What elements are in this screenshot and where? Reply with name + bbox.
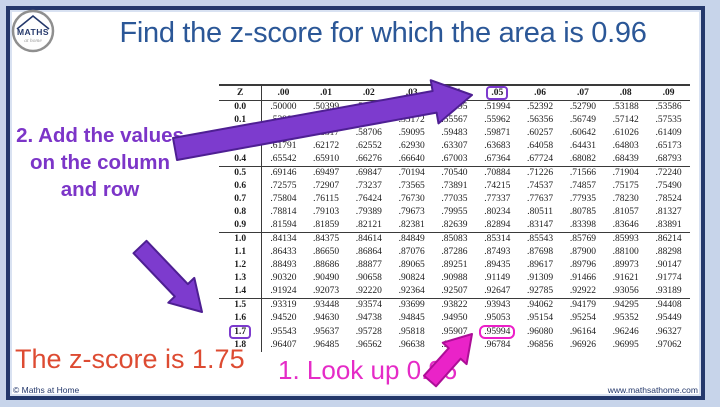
ztable-cell: .95907 — [433, 325, 476, 339]
ztable-cell: .77035 — [433, 193, 476, 206]
ztable-cell: .71226 — [519, 167, 562, 181]
result-text: The z-score is 1.75 — [15, 344, 245, 375]
ztable-cell: .96926 — [562, 339, 605, 352]
ztable-cell: .64058 — [519, 140, 562, 153]
ztable-cell: .76424 — [347, 193, 390, 206]
ztable-cell: .65173 — [647, 140, 690, 153]
ztable-cell: .96485 — [305, 339, 348, 352]
ztable-cell: .92785 — [519, 285, 562, 299]
ztable-cell: .83891 — [647, 219, 690, 233]
ztable-cell: .84849 — [390, 233, 433, 247]
ztable-cell: .74537 — [519, 180, 562, 193]
ztable-cell: .59483 — [433, 127, 476, 140]
ztable-cell: .74215 — [476, 180, 519, 193]
ztable-cell: .90988 — [433, 272, 476, 285]
ztable-cell: .89435 — [476, 259, 519, 272]
ztable-cell: .81057 — [604, 206, 647, 219]
ztable-cell: .68439 — [604, 153, 647, 167]
ztable-cell: .92647 — [476, 285, 519, 299]
ztable-cell: .65910 — [305, 153, 348, 167]
ztable-cell: .77637 — [519, 193, 562, 206]
ztable-cell: .77935 — [562, 193, 605, 206]
ztable-cell: .80785 — [562, 206, 605, 219]
ztable-cell: .89617 — [519, 259, 562, 272]
ztable-cell: .96638 — [390, 339, 433, 352]
ztable-cell: .87493 — [476, 246, 519, 259]
ztable-cell: .88686 — [305, 259, 348, 272]
ztable-cell: .92922 — [562, 285, 605, 299]
ztable-cell: .97062 — [647, 339, 690, 352]
ztable-cell: .78524 — [647, 193, 690, 206]
ztable-cell: .96784 — [476, 339, 519, 352]
ztable-cell: .96327 — [647, 325, 690, 339]
ztable-cell: .57926 — [262, 127, 305, 140]
ztable-cell: .54380 — [305, 114, 348, 127]
ztable-col-header: .09 — [647, 85, 690, 101]
ztable-cell: .88877 — [347, 259, 390, 272]
ztable-cell: .51994 — [476, 101, 519, 115]
ztable-cell: .84614 — [347, 233, 390, 247]
ztable-cell: .93699 — [390, 299, 433, 313]
copyright-text: © Maths at Home — [13, 385, 79, 395]
ztable-cell: .72240 — [647, 167, 690, 181]
ztable-row-label: 0.2 — [219, 127, 262, 140]
ztable-cell: .69847 — [347, 167, 390, 181]
highlight-box-row: 1.7 — [229, 325, 251, 339]
ztable-cell: .83646 — [604, 219, 647, 233]
ztable-cell: .81327 — [647, 206, 690, 219]
ztable-cell: .83398 — [562, 219, 605, 233]
ztable-cell: .85314 — [476, 233, 519, 247]
ztable-cell: .60642 — [562, 127, 605, 140]
ztable-row-label: 1.1 — [219, 246, 262, 259]
ztable-cell: .56356 — [519, 114, 562, 127]
ztable-row-label: 1.7 — [219, 325, 262, 339]
ztable-cell: .95994 — [476, 325, 519, 339]
ztable-cell: .88493 — [262, 259, 305, 272]
ztable-cell: .85083 — [433, 233, 476, 247]
ztable-cell: .61026 — [604, 127, 647, 140]
ztable-cell: .91466 — [562, 272, 605, 285]
ztable-cell: .59871 — [476, 127, 519, 140]
ztable-row-label: 0.0 — [219, 101, 262, 115]
ztable-cell: .92507 — [433, 285, 476, 299]
ztable-cell: .72575 — [262, 180, 305, 193]
ztable-cell: .87900 — [562, 246, 605, 259]
ztable-cell: .58317 — [305, 127, 348, 140]
ztable-cell: .76730 — [390, 193, 433, 206]
ztable-cell: .94845 — [390, 312, 433, 325]
ztable-cell: .90824 — [390, 272, 433, 285]
ztable-cell: .73565 — [390, 180, 433, 193]
ztable-cell: .94738 — [347, 312, 390, 325]
ztable-cell: .93574 — [347, 299, 390, 313]
ztable-cell: .86214 — [647, 233, 690, 247]
ztable-cell: .75490 — [647, 180, 690, 193]
ztable-cell: .84134 — [262, 233, 305, 247]
ztable-cell: .67724 — [519, 153, 562, 167]
ztable-cell: .95053 — [476, 312, 519, 325]
ztable-cell: .53983 — [262, 114, 305, 127]
ztable-row-label: 0.9 — [219, 219, 262, 233]
ztable-row-label: 1.2 — [219, 259, 262, 272]
ztable-row-label: 0.8 — [219, 206, 262, 219]
ztable-cell: .81594 — [262, 219, 305, 233]
ztable-cell: .53188 — [604, 101, 647, 115]
ztable-col-header: .03 — [390, 85, 433, 101]
ztable-cell: .57142 — [604, 114, 647, 127]
ztable-cell: .81859 — [305, 219, 348, 233]
slide-title: Find the z-score for which the area is 0… — [64, 17, 702, 50]
ztable-cell: .85993 — [604, 233, 647, 247]
ztable-cell: .71904 — [604, 167, 647, 181]
ztable-cell: .50399 — [305, 101, 348, 115]
ztable-cell: .78814 — [262, 206, 305, 219]
ztable-cell: .65542 — [262, 153, 305, 167]
ztable-col-header: .04 — [433, 85, 476, 101]
ztable-cell: .55172 — [390, 114, 433, 127]
ztable-cell: .91309 — [519, 272, 562, 285]
ztable-cell: .66276 — [347, 153, 390, 167]
ztable-cell: .63683 — [476, 140, 519, 153]
ztable-cell: .93056 — [604, 285, 647, 299]
ztable-cell: .82121 — [347, 219, 390, 233]
ztable-cell: .91774 — [647, 272, 690, 285]
ztable-cell: .94630 — [305, 312, 348, 325]
ztable-cell: .70540 — [433, 167, 476, 181]
ztable-cell: .61409 — [647, 127, 690, 140]
ztable-cell: .87286 — [433, 246, 476, 259]
ztable-cell: .54776 — [347, 114, 390, 127]
ztable-cell: .96995 — [604, 339, 647, 352]
ztable-cell: .91924 — [262, 285, 305, 299]
ztable-cell: .52392 — [519, 101, 562, 115]
ztable-cell: .69146 — [262, 167, 305, 181]
ztable-cell: .94950 — [433, 312, 476, 325]
highlight-box-cell: .95994 — [479, 325, 515, 339]
ztable-cell: .53586 — [647, 101, 690, 115]
ztable-cell: .58706 — [347, 127, 390, 140]
ztable-cell: .79955 — [433, 206, 476, 219]
ztable-cell: .83147 — [519, 219, 562, 233]
maths-at-home-logo: MATHS at home — [10, 8, 56, 54]
ztable-cell: .96856 — [519, 339, 562, 352]
ztable-cell: .88298 — [647, 246, 690, 259]
ztable-cell: .67364 — [476, 153, 519, 167]
ztable-cell: .94179 — [562, 299, 605, 313]
ztable-cell: .86433 — [262, 246, 305, 259]
ztable-cell: .51595 — [433, 101, 476, 115]
ztable-cell: .93319 — [262, 299, 305, 313]
ztable-cell: .87076 — [390, 246, 433, 259]
ztable-cell: .93189 — [647, 285, 690, 299]
ztable-cell: .95818 — [390, 325, 433, 339]
ztable-cell: .51197 — [390, 101, 433, 115]
ztable-cell: .93822 — [433, 299, 476, 313]
ztable-cell: .73891 — [433, 180, 476, 193]
ztable-cell: .82894 — [476, 219, 519, 233]
ztable-cell: .96712 — [433, 339, 476, 352]
ztable-cell: .57535 — [647, 114, 690, 127]
ztable-cell: .82639 — [433, 219, 476, 233]
ztable-row-label: 0.6 — [219, 180, 262, 193]
ztable-cell: .92364 — [390, 285, 433, 299]
ztable-cell: .79673 — [390, 206, 433, 219]
ztable-row-label: 0.3 — [219, 140, 262, 153]
ztable-cell: .93448 — [305, 299, 348, 313]
ztable-cell: .50798 — [347, 101, 390, 115]
ztable-cell: .85769 — [562, 233, 605, 247]
ztable-cell: .90490 — [305, 272, 348, 285]
ztable-cell: .68082 — [562, 153, 605, 167]
ztable-cell: .95637 — [305, 325, 348, 339]
ztable-row-label: 1.4 — [219, 285, 262, 299]
ztable-cell: .66640 — [390, 153, 433, 167]
ztable-cell: .85543 — [519, 233, 562, 247]
logo-subtext: at home — [24, 38, 42, 44]
ztable-cell: .64803 — [604, 140, 647, 153]
ztable-cell: .56749 — [562, 114, 605, 127]
ztable-cell: .89065 — [390, 259, 433, 272]
ztable-cell: .89973 — [604, 259, 647, 272]
ztable-cell: .62930 — [390, 140, 433, 153]
ztable-cell: .55567 — [433, 114, 476, 127]
ztable-cell: .78230 — [604, 193, 647, 206]
step1-annotation: 1. Look up 0.96 — [278, 355, 457, 386]
ztable-cell: .60257 — [519, 127, 562, 140]
ztable-cell: .91149 — [476, 272, 519, 285]
ztable-cell: .70884 — [476, 167, 519, 181]
ztable-cell: .80234 — [476, 206, 519, 219]
ztable-col-header: .08 — [604, 85, 647, 101]
ztable-cell: .84375 — [305, 233, 348, 247]
ztable-cell: .89796 — [562, 259, 605, 272]
ztable-cell: .94295 — [604, 299, 647, 313]
ztable-cell: .96164 — [562, 325, 605, 339]
ztable-cell: .71566 — [562, 167, 605, 181]
ztable-cell: .80511 — [519, 206, 562, 219]
ztable-col-header: Z — [219, 85, 262, 101]
ztable-row-label: 0.5 — [219, 167, 262, 181]
ztable-cell: .72907 — [305, 180, 348, 193]
ztable-cell: .76115 — [305, 193, 348, 206]
ztable-row-label: 1.6 — [219, 312, 262, 325]
ztable-cell: .59095 — [390, 127, 433, 140]
ztable-cell: .75804 — [262, 193, 305, 206]
logo-text: MATHS — [17, 27, 49, 37]
ztable-cell: .95543 — [262, 325, 305, 339]
website-url: www.mathsathome.com — [608, 385, 698, 395]
ztable-cell: .94408 — [647, 299, 690, 313]
ztable-cell: .62172 — [305, 140, 348, 153]
ztable-cell: .86650 — [305, 246, 348, 259]
ztable-cell: .90320 — [262, 272, 305, 285]
ztable-cell: .68793 — [647, 153, 690, 167]
ztable-cell: .96562 — [347, 339, 390, 352]
ztable-row-label: 1.0 — [219, 233, 262, 247]
z-table: Z.00.01.02.03.04.05.06.07.08.090.0.50000… — [219, 84, 690, 352]
ztable-cell: .62552 — [347, 140, 390, 153]
ztable-col-header: .02 — [347, 85, 390, 101]
ztable-cell: .79103 — [305, 206, 348, 219]
ztable-row-label: 1.5 — [219, 299, 262, 313]
ztable-cell: .61791 — [262, 140, 305, 153]
ztable-cell: .87698 — [519, 246, 562, 259]
ztable-cell: .95352 — [604, 312, 647, 325]
ztable-cell: .82381 — [390, 219, 433, 233]
ztable-cell: .95449 — [647, 312, 690, 325]
ztable-cell: .77337 — [476, 193, 519, 206]
ztable-row-label: 0.4 — [219, 153, 262, 167]
ztable-cell: .91621 — [604, 272, 647, 285]
ztable-cell: .96080 — [519, 325, 562, 339]
ztable-col-header: .01 — [305, 85, 348, 101]
ztable-cell: .92220 — [347, 285, 390, 299]
ztable-cell: .64431 — [562, 140, 605, 153]
ztable-cell: .63307 — [433, 140, 476, 153]
z-table-grid: Z.00.01.02.03.04.05.06.07.08.090.0.50000… — [219, 84, 690, 352]
ztable-cell: .50000 — [262, 101, 305, 115]
ztable-col-header: .06 — [519, 85, 562, 101]
ztable-cell: .69497 — [305, 167, 348, 181]
slide: MATHS at home Find the z-score for which… — [0, 0, 720, 407]
ztable-cell: .94520 — [262, 312, 305, 325]
ztable-cell: .70194 — [390, 167, 433, 181]
ztable-col-header: .07 — [562, 85, 605, 101]
ztable-col-header: .05 — [476, 85, 519, 101]
ztable-cell: .96407 — [262, 339, 305, 352]
ztable-row-label: 0.7 — [219, 193, 262, 206]
ztable-cell: .95154 — [519, 312, 562, 325]
highlight-box-column: .05 — [486, 86, 508, 100]
ztable-cell: .75175 — [604, 180, 647, 193]
ztable-cell: .95728 — [347, 325, 390, 339]
ztable-cell: .79389 — [347, 206, 390, 219]
ztable-cell: .93943 — [476, 299, 519, 313]
ztable-row-label: 0.1 — [219, 114, 262, 127]
ztable-cell: .90658 — [347, 272, 390, 285]
ztable-cell: .73237 — [347, 180, 390, 193]
step2-annotation: 2. Add the values on the column and row — [12, 122, 188, 203]
ztable-cell: .95254 — [562, 312, 605, 325]
ztable-col-header: .00 — [262, 85, 305, 101]
ztable-cell: .89251 — [433, 259, 476, 272]
ztable-cell: .88100 — [604, 246, 647, 259]
ztable-cell: .94062 — [519, 299, 562, 313]
ztable-cell: .55962 — [476, 114, 519, 127]
ztable-cell: .52790 — [562, 101, 605, 115]
ztable-cell: .86864 — [347, 246, 390, 259]
ztable-cell: .90147 — [647, 259, 690, 272]
ztable-cell: .92073 — [305, 285, 348, 299]
ztable-cell: .74857 — [562, 180, 605, 193]
ztable-cell: .96246 — [604, 325, 647, 339]
ztable-row-label: 1.3 — [219, 272, 262, 285]
ztable-cell: .67003 — [433, 153, 476, 167]
